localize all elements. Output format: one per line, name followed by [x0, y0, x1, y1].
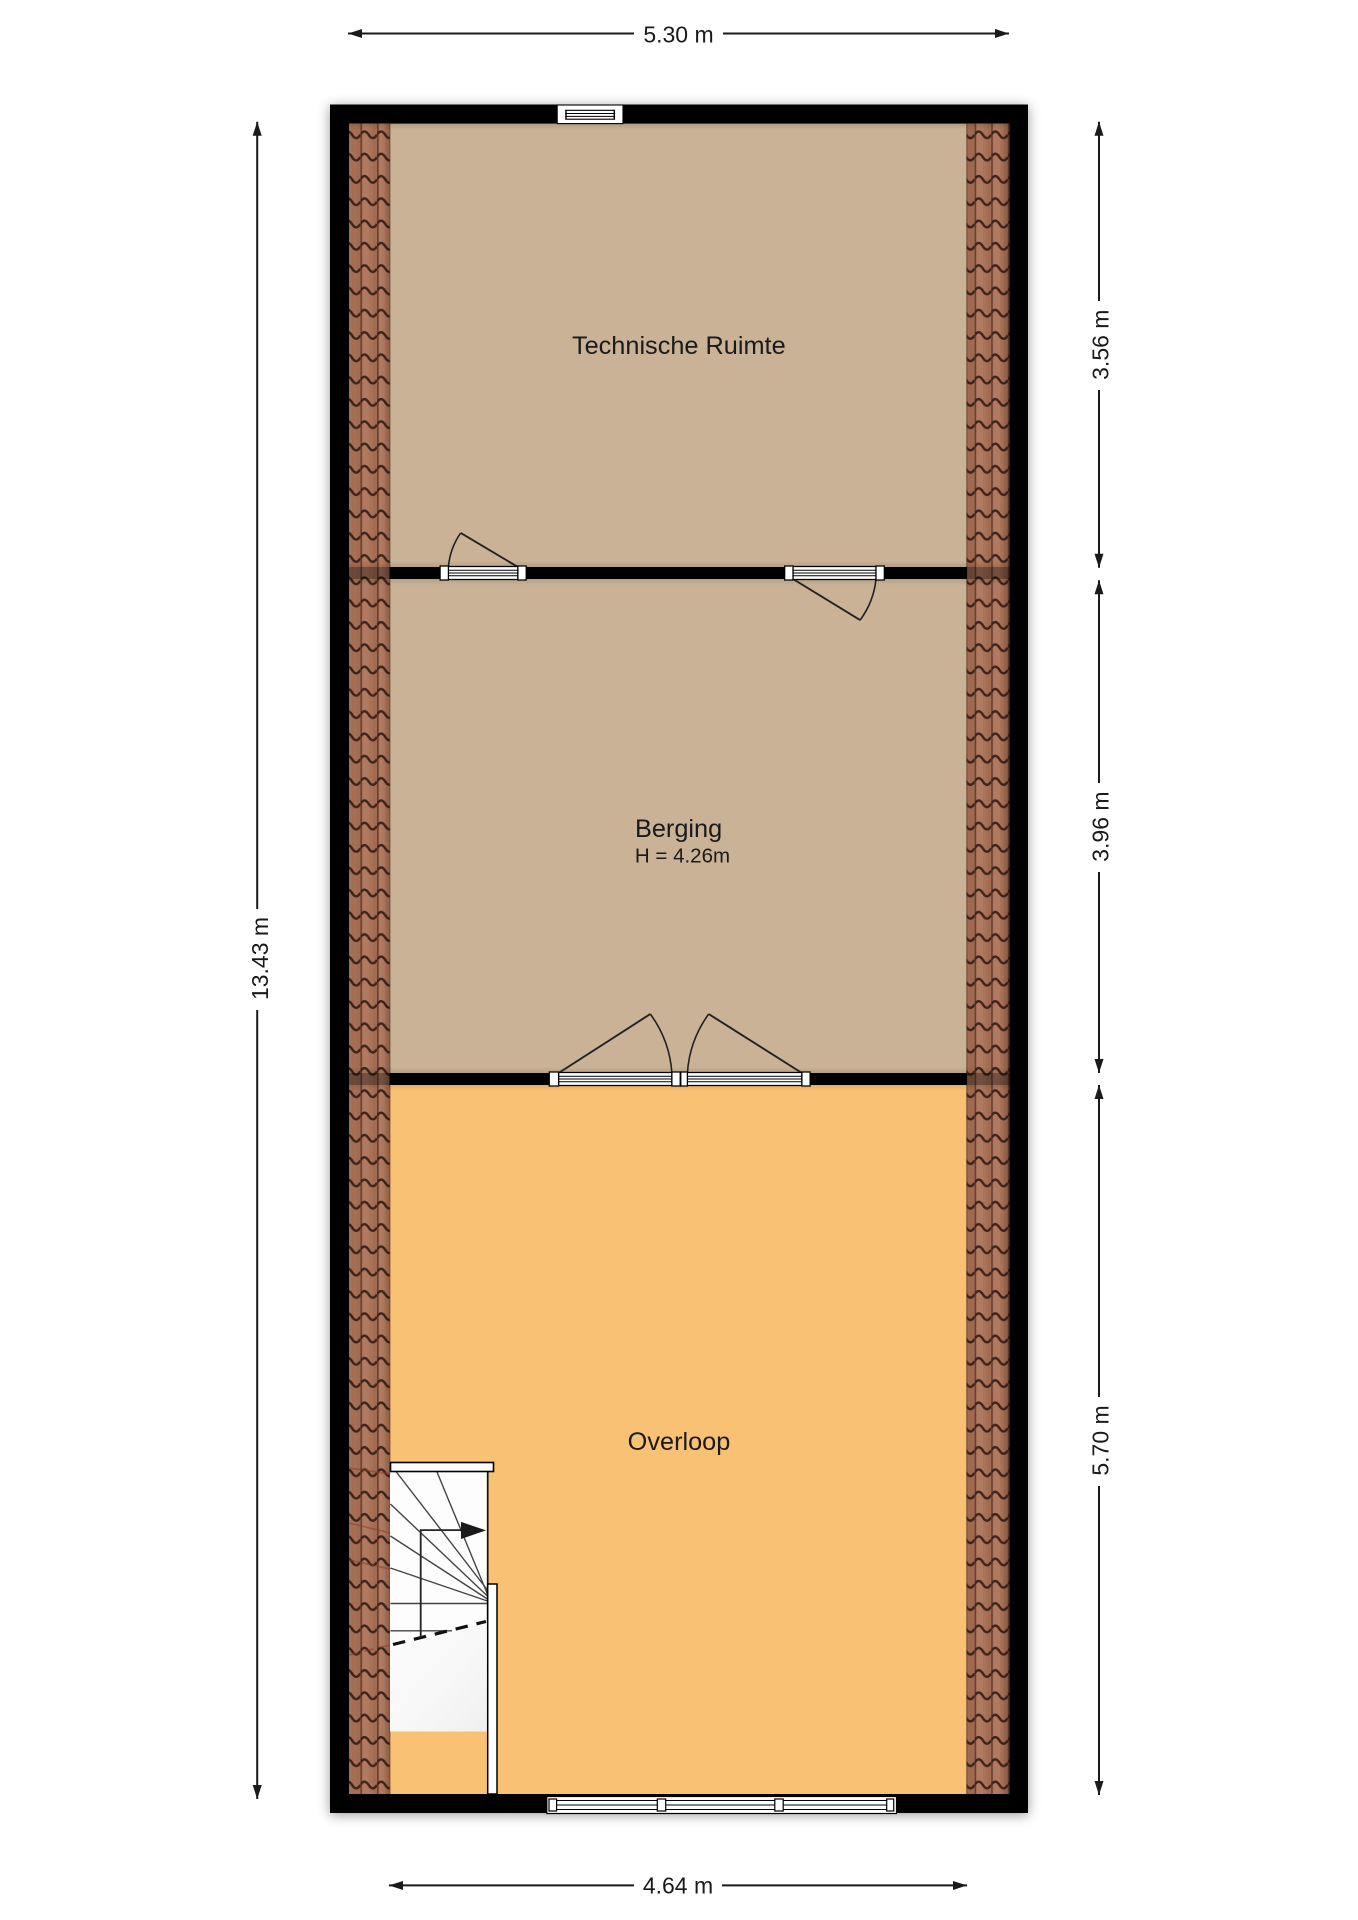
svg-text:3.56 m: 3.56 m — [1088, 310, 1114, 380]
svg-text:Overloop: Overloop — [628, 1428, 731, 1456]
svg-text:Berging: Berging — [635, 815, 722, 843]
svg-text:13.43 m: 13.43 m — [247, 917, 273, 1000]
svg-text:5.30 m: 5.30 m — [643, 22, 713, 48]
svg-text:3.96 m: 3.96 m — [1088, 791, 1114, 861]
svg-text:4.64 m: 4.64 m — [643, 1872, 713, 1898]
svg-text:H = 4.26m: H = 4.26m — [635, 844, 730, 867]
svg-text:Technische Ruimte: Technische Ruimte — [572, 332, 786, 360]
svg-text:5.70 m: 5.70 m — [1088, 1405, 1114, 1475]
